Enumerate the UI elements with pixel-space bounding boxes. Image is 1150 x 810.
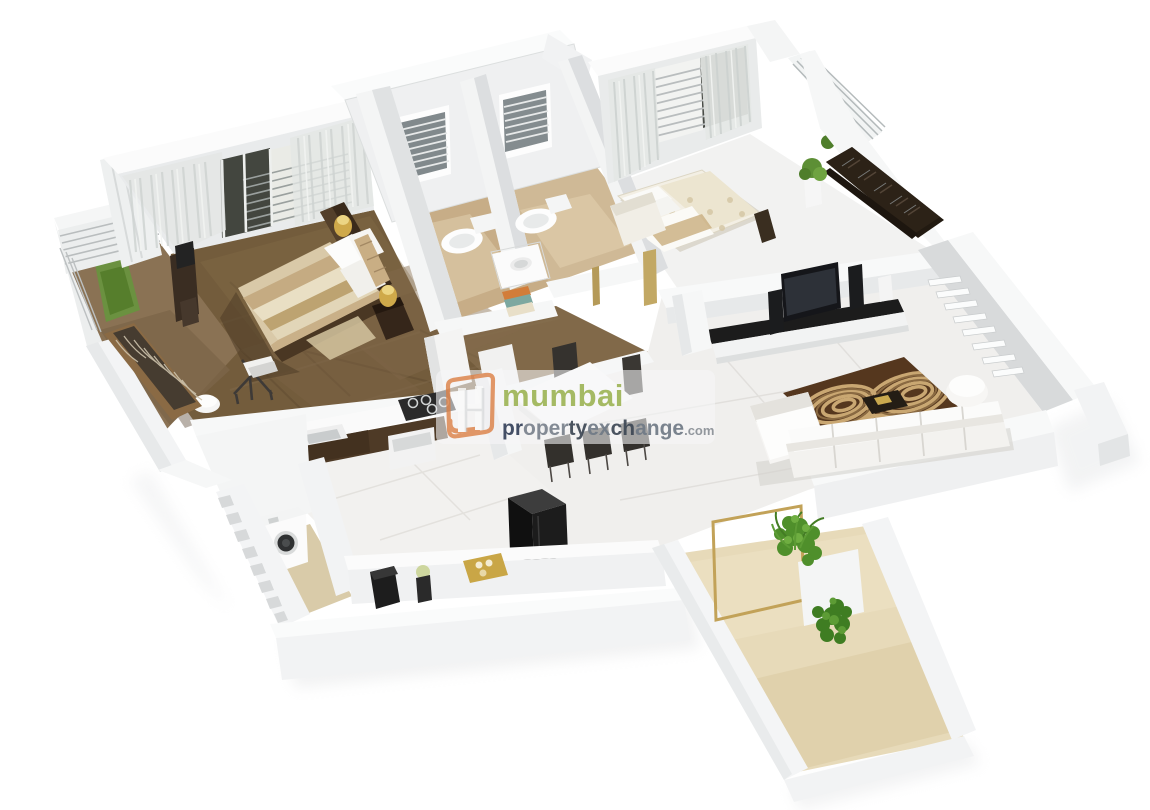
svg-text:propertyexchange.com: propertyexchange.com (502, 417, 714, 440)
svg-text:mumbai: mumbai (502, 378, 624, 413)
